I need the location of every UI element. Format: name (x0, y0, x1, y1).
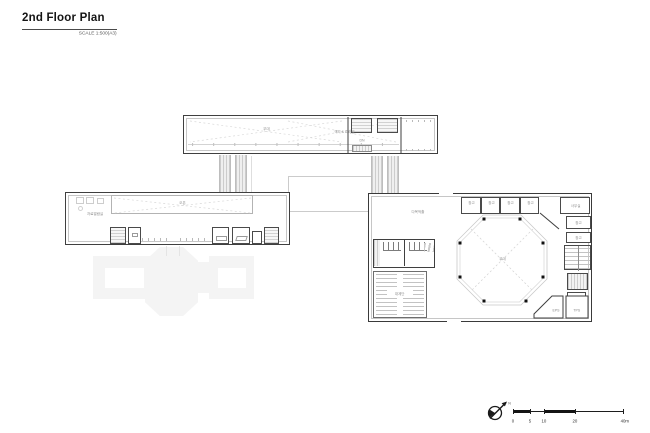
furniture-block (97, 198, 104, 204)
top-cell-1: 창고 (461, 197, 481, 214)
ghost-right-wing (209, 256, 254, 299)
side-room-label: 창고 (567, 220, 591, 226)
toilet-stalls (383, 242, 401, 251)
grand-stair: 대계단 (373, 271, 427, 318)
left-room-5 (252, 231, 263, 244)
scale-label-0: 0 (505, 418, 521, 425)
top-cell-label-text: 창고 (507, 200, 513, 205)
fixture (132, 233, 138, 237)
left-room-6 (264, 227, 279, 244)
left-room-1 (110, 227, 126, 244)
upper-tick-row (406, 120, 432, 122)
corner-room: 사무실 (560, 197, 590, 214)
ghost-stub-line (166, 246, 167, 256)
left-void-diagonals (112, 196, 254, 215)
furniture-block (76, 197, 84, 204)
scale-note-text: SCALE 1:500(A3) (79, 31, 117, 36)
stair-treads-left (376, 274, 397, 315)
side-room-label: 창고 (567, 235, 591, 241)
upper-stair-strip (352, 145, 372, 152)
corner-room-label-text: 사무실 (571, 203, 581, 208)
top-cell-label: 창고 (501, 200, 520, 206)
left-building: 오픈 자료열람실 (65, 192, 290, 245)
top-cell-2: 창고 (481, 197, 501, 214)
scale-tick (544, 409, 545, 415)
scale-label-10: 10 (536, 418, 552, 425)
stair-treads-right (403, 274, 424, 315)
top-cell-label-text: 창고 (488, 200, 494, 205)
escalator-band (387, 156, 399, 194)
side-room-label-text: 창고 (575, 235, 581, 240)
fixture-hatch (424, 243, 434, 252)
ghost-left-wing (93, 256, 156, 299)
floor-plan-canvas: 2nd Floor Plan SCALE 1:500(A3) 무대 객석 & 리… (0, 0, 650, 433)
hall-label: 다목적홀 (393, 208, 443, 216)
scale-note: SCALE 1:500(A3) (38, 30, 117, 37)
scale-label-0-text: 0 (512, 419, 514, 423)
corner-diagonal-wall (537, 211, 563, 231)
scale-bar-segment (513, 410, 530, 414)
right-building: 무대 다목적홀 창고 창고 창고 창고 사무실 창고 창고 (368, 193, 592, 322)
page-title: 2nd Floor Plan (22, 12, 105, 24)
scale-tick (513, 409, 514, 415)
furniture-round-table (78, 206, 83, 211)
courtyard-outline (288, 176, 374, 212)
side-room-2: 창고 (566, 232, 591, 243)
scale-label-40m-text: 40m (621, 419, 629, 423)
top-cell-label-text: 창고 (468, 200, 474, 205)
restroom-divider-wall (404, 240, 405, 267)
top-cell-label: 창고 (521, 200, 540, 206)
left-room-2 (128, 227, 141, 244)
left-name-label-text: 자료열람실 (87, 212, 103, 217)
upper-room-mech (351, 118, 372, 133)
side-room-label-text: 창고 (575, 221, 581, 226)
upper-building-linework (184, 116, 439, 155)
upper-tick-row (406, 149, 432, 151)
scale-tick (575, 409, 576, 415)
top-cell-label: 창고 (462, 200, 481, 206)
side-stair (564, 245, 591, 270)
hall-label-text: 다목적홀 (412, 210, 425, 215)
ghost-right-hole (218, 268, 246, 288)
door-tick-row (180, 238, 205, 241)
scale-bar: 0 5 10 20 40m (506, 404, 640, 430)
stair-center-rail (578, 246, 579, 271)
top-cell-label-text: 창고 (527, 200, 533, 205)
restroom-hatch-strip (374, 240, 380, 267)
ghost-stub-line (179, 246, 180, 256)
elevator-shaft (567, 273, 588, 290)
corner-room-label: 사무실 (561, 203, 590, 209)
utility-rooms (531, 293, 591, 320)
upper-building: 무대 객석 & 리허설 DN (183, 115, 438, 154)
top-cell-label: 창고 (482, 200, 501, 206)
ghost-left-hole (105, 268, 144, 288)
scale-label-10-text: 10 (542, 419, 547, 423)
furniture-block (86, 197, 94, 204)
scale-label-20: 20 (567, 418, 583, 425)
scale-label-40m: 40m (615, 418, 635, 425)
door-gap-bottom (447, 321, 461, 324)
scale-bar-segment (544, 410, 575, 414)
scale-label-5-text: 5 (529, 419, 531, 423)
side-room-1: 창고 (566, 216, 591, 229)
walkway-edge-line (251, 156, 252, 192)
scale-tick (530, 409, 531, 415)
upper-room-elec (377, 118, 398, 133)
left-room-4 (232, 227, 250, 244)
left-void (111, 195, 253, 214)
left-room-3 (212, 227, 229, 244)
scale-label-20-text: 20 (573, 419, 578, 423)
door-tick-row (142, 238, 172, 241)
fixture (235, 236, 248, 241)
escalator-band (371, 156, 383, 194)
scale-tick (623, 409, 624, 415)
top-cell-3: 창고 (500, 197, 520, 214)
door-gap-top (439, 193, 453, 196)
fixture (216, 236, 227, 241)
